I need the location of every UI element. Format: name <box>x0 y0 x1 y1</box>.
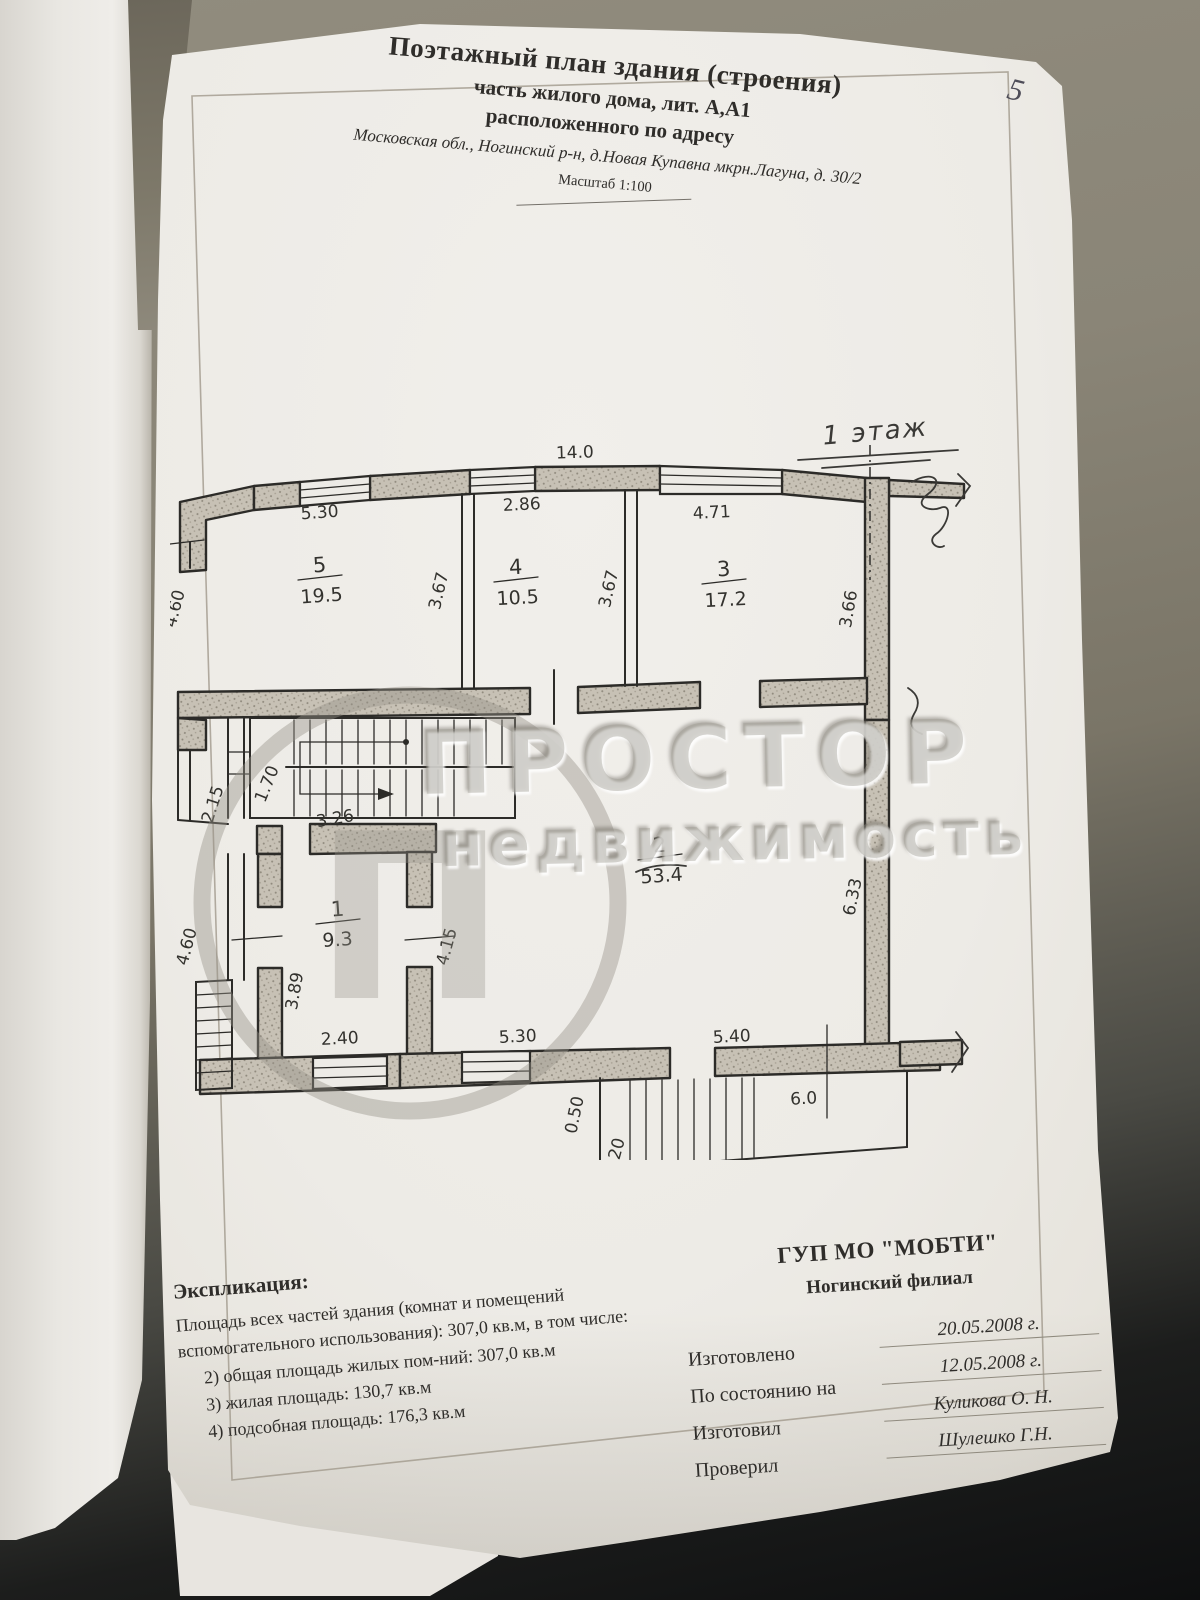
dim-room1-right: 4.15 <box>433 926 462 968</box>
dim-room1-left: 3.89 <box>282 971 308 1012</box>
room-2-area: 53.4 <box>640 864 684 889</box>
floor-plan-drawing: 1 этаж 5 19.5 4 10.5 3 17.2 2 53.4 1 9.3… <box>170 350 1000 1160</box>
dim-room3-width: 4.71 <box>692 502 731 524</box>
room-1-area: 9.3 <box>322 928 354 952</box>
room-1-number: 1 <box>330 897 345 922</box>
organization-block: ГУП МО "МОБТИ" Ногинский филиал Изготовл… <box>681 1223 1107 1482</box>
dim-right-depth: 3.66 <box>836 589 862 630</box>
book-left-page <box>0 0 152 1540</box>
porch <box>600 1072 907 1160</box>
dim-porch-width: 6.0 <box>790 1088 818 1109</box>
pen-marks <box>636 450 970 1072</box>
room-labels: 5 19.5 4 10.5 3 17.2 2 53.4 1 9.3 <box>300 553 748 952</box>
org-row-value: 20.05.2008 г. <box>878 1309 1099 1348</box>
dim-stair-flight: 1.70 <box>251 763 284 806</box>
room-4-area: 10.5 <box>496 586 539 610</box>
room-5-area: 19.5 <box>300 584 344 609</box>
dim-room4-depth-right: 3.67 <box>595 568 623 609</box>
dim-room2-right: 6.33 <box>839 876 866 917</box>
organization-rows: Изготовлено 20.05.2008 г. По состоянию н… <box>686 1309 1106 1483</box>
dim-bottom-2: 5.40 <box>712 1026 751 1048</box>
dim-room4-width: 2.86 <box>502 494 541 516</box>
room-3-number: 3 <box>716 557 731 582</box>
dim-porch-offset: 0.50 <box>561 1094 588 1135</box>
plan-windows <box>300 466 782 1089</box>
dim-room5-width: 5.30 <box>300 502 339 525</box>
dim-left-lower: 4.60 <box>173 926 202 968</box>
dim-stair-width: 2.15 <box>198 783 229 825</box>
floor-label: 1 этаж <box>821 412 929 451</box>
room-3-area: 17.2 <box>704 588 747 612</box>
room-4-number: 4 <box>508 555 523 580</box>
dim-room4-depth-left: 3.67 <box>425 570 453 611</box>
dim-room1-width: 2.40 <box>320 1028 359 1050</box>
dim-top-total: 14.0 <box>556 442 595 463</box>
room-5-number: 5 <box>312 553 327 578</box>
dim-bottom-1: 5.30 <box>498 1026 537 1048</box>
room-2-number: 2 <box>652 833 667 858</box>
dim-porch-depth: 1.20 <box>601 1136 630 1160</box>
photo-scene: 1 этаж 5 19.5 4 10.5 3 17.2 2 53.4 1 9.3… <box>0 0 1200 1600</box>
dim-left-depth: 4.60 <box>170 588 190 630</box>
